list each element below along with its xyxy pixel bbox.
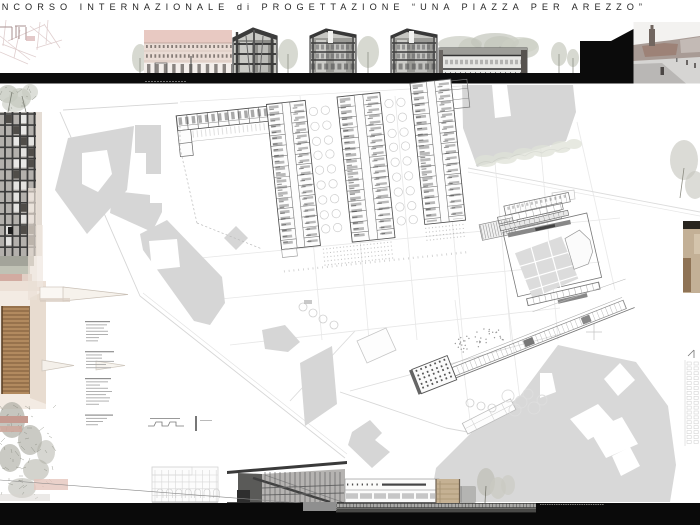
svg-text:CONCORSO INTERNAZIONALE di PRO: CONCORSO INTERNAZIONALE di PROGETTAZIONE…: [0, 2, 647, 12]
